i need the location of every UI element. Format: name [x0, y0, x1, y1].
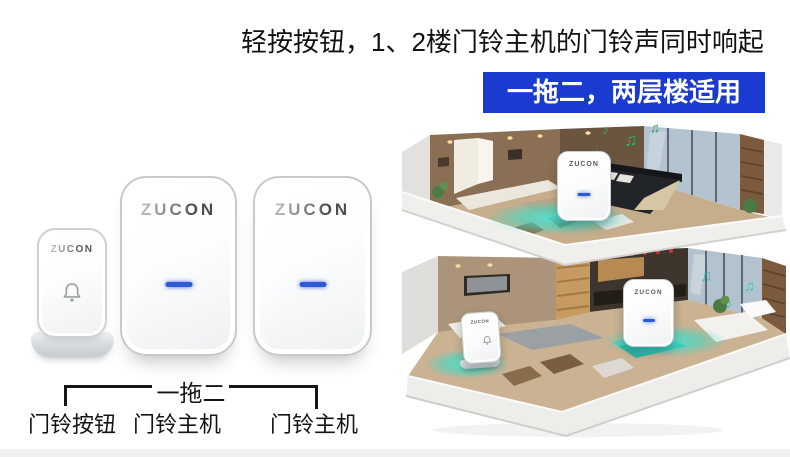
label-receiver-2: 门铃主机	[270, 407, 358, 439]
brand-logo: ZUCON	[462, 318, 498, 325]
brand-logo: ZUCON	[624, 289, 673, 296]
bracket-line	[229, 385, 318, 388]
bracket-line	[315, 385, 318, 409]
label-doorbell-button: 门铃按钮	[28, 407, 116, 439]
house-illustration: ♪ ♫ ♪ ♫ ♫ ♪ ♫ ZUCON ZUCON ZUCON	[398, 116, 790, 454]
banner: 一拖二，两层楼适用	[483, 72, 765, 113]
receiver-floor1: ZUCON	[623, 279, 674, 347]
receiver-floor2: ZUCON	[557, 151, 611, 221]
bracket-label: 一拖二	[152, 374, 230, 408]
bracket-line	[64, 385, 67, 406]
led-indicator	[165, 282, 192, 287]
bottom-divider	[0, 449, 790, 457]
receiver-photo-1: ZUCON	[120, 176, 237, 356]
headline-text: 轻按按钮，1、2楼门铃主机的门铃声同时响起	[241, 26, 764, 58]
led-indicator	[578, 193, 591, 196]
brand-logo: ZUCON	[37, 244, 107, 255]
doorbell-button-photo: ZUCON	[37, 228, 107, 338]
ad-canvas: 轻按按钮，1、2楼门铃主机的门铃声同时响起 一拖二，两层楼适用 ZUCON ZU…	[0, 0, 790, 457]
led-indicator	[643, 319, 655, 322]
brand-logo: ZUCON	[558, 161, 610, 168]
label-receiver-1: 门铃主机	[133, 407, 221, 439]
bell-icon	[59, 280, 85, 311]
receiver-photo-2: ZUCON	[253, 176, 372, 356]
doorbell-button-floor1: ZUCON	[460, 311, 501, 365]
led-indicator	[299, 282, 326, 287]
bracket-line	[64, 385, 152, 388]
brand-logo: ZUCON	[120, 200, 237, 220]
brand-logo: ZUCON	[253, 200, 372, 220]
